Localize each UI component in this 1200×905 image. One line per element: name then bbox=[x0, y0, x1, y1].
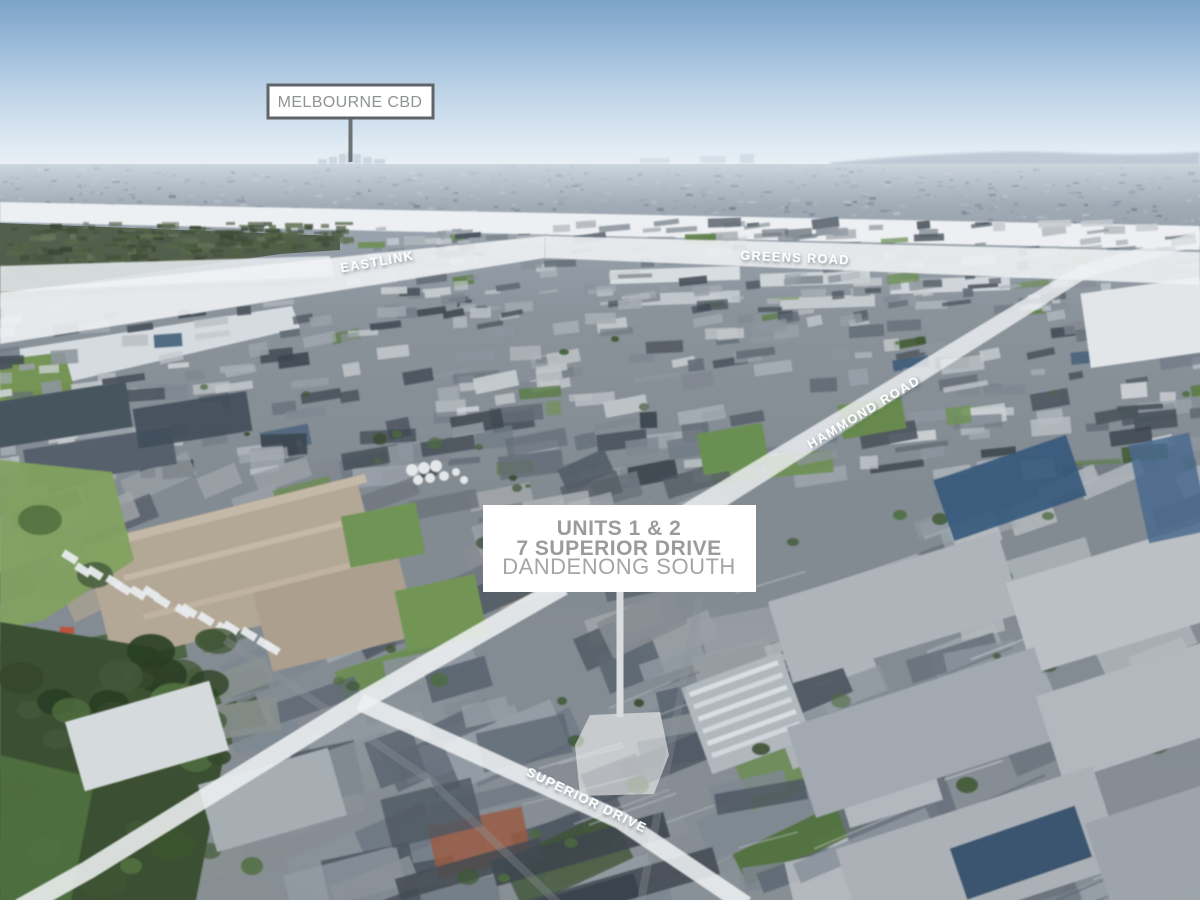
svg-text:MELBOURNE CBD: MELBOURNE CBD bbox=[278, 94, 423, 111]
svg-text:DANDENONG SOUTH: DANDENONG SOUTH bbox=[502, 554, 736, 579]
